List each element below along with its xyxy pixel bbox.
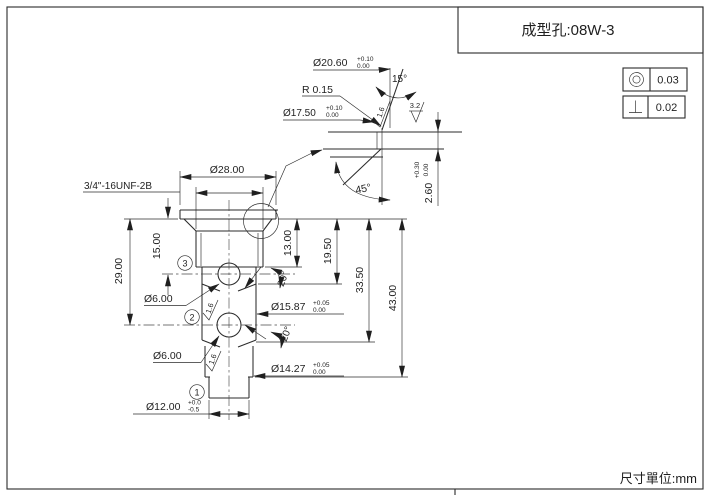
dim-len-15: 15.00 (151, 198, 168, 295)
balloon-2: 2 (185, 310, 200, 325)
balloon-1: 1 (190, 385, 205, 400)
depth-2-60-tol-upper: +0.30 (414, 161, 421, 178)
roughness-icon-upper-bore: 1.6 (203, 300, 218, 320)
angle-15-label: 15° (392, 74, 407, 85)
balloon-1-number: 1 (194, 388, 199, 398)
drawing-sheet: 成型孔:08W-3 0.03 0.02 (0, 0, 706, 495)
dim-len-43: 43.00 (387, 219, 402, 377)
depth-2-60-value: 2.60 (423, 183, 435, 204)
angle-20-upper-label: 20° (276, 270, 292, 288)
dia-14-27-tol-upper: +0.05 (313, 362, 330, 369)
len-29-label: 29.00 (113, 258, 125, 284)
detail-view-outline (323, 68, 462, 205)
roughness-lower-value: 1.6 (207, 353, 219, 366)
dim-len-13: 13.00 (282, 219, 297, 267)
concentricity-icon (630, 73, 644, 87)
roughness-taper-value: 1.6 (375, 106, 387, 119)
title-block: 成型孔:08W-3 (458, 7, 703, 53)
dia-20-60-tol-lower: 0.00 (357, 63, 370, 70)
dia-15-87-tol-upper: +0.05 (313, 300, 330, 307)
dia-28-label: Ø28.00 (210, 164, 245, 176)
roughness-upper-value: 1.6 (204, 302, 216, 315)
dia-14-27-value: Ø14.27 (271, 363, 306, 375)
dim-dia-12: Ø12.00 +0.0 -0.5 (133, 400, 249, 420)
tolerance-frame-concentricity: 0.03 (623, 68, 687, 91)
dim-len-19-5: 19.50 (322, 219, 337, 284)
angle-20-upper: 20° (271, 268, 291, 288)
dia-17-50-tol-upper: +0.10 (326, 105, 343, 112)
dia-15-87-value: Ø15.87 (271, 301, 306, 313)
balloon-3: 3 (178, 256, 193, 271)
tolerance-frame-perpendicularity: 0.02 (623, 96, 685, 118)
roughness-icon-lower-bore: 1.6 (206, 351, 221, 371)
dia-12-tol-upper: +0.0 (188, 400, 201, 407)
roughness-icon-seat: 3.2 (409, 101, 424, 122)
balloon-2-number: 2 (189, 313, 194, 323)
dim-len-29: 29.00 (113, 219, 178, 325)
dia-15-87-tol-lower: 0.00 (313, 307, 326, 314)
dia-20-60-value: Ø20.60 (313, 57, 348, 69)
thread-callout-label: 3/4"-16UNF-2B (84, 181, 152, 192)
dia-17-50-value: Ø17.50 (283, 108, 316, 119)
dim-thread-callout: 3/4"-16UNF-2B (83, 181, 263, 229)
engineering-drawing-canvas: 成型孔:08W-3 0.03 0.02 (0, 0, 706, 495)
dia-6-upper-label: Ø6.00 (144, 293, 173, 305)
label-dia-17-50: Ø17.50 +0.10 0.00 (283, 105, 374, 122)
len-43-label: 43.00 (387, 285, 399, 311)
dim-depth-2-60: +0.30 0.00 2.60 (414, 112, 438, 206)
len-33-5-label: 33.50 (354, 267, 366, 293)
radius-0-15-label: R 0.15 (302, 84, 333, 96)
dia-12-value: Ø12.00 (146, 401, 181, 413)
dim-len-33-5: 33.50 (354, 219, 369, 342)
len-15-label: 15.00 (151, 233, 163, 259)
len-19-5-label: 19.50 (322, 238, 334, 264)
dia-6-lower-label: Ø6.00 (153, 350, 182, 362)
roughness-seat-value: 3.2 (410, 101, 420, 110)
angle-20-lower-label: 20° (279, 325, 295, 343)
sheet-border (7, 7, 703, 495)
dim-dia-28: Ø28.00 (180, 164, 276, 205)
label-dia-20-60: Ø20.60 +0.10 0.00 (313, 56, 390, 70)
balloon-3-number: 3 (182, 259, 187, 269)
concentricity-value: 0.03 (657, 75, 678, 87)
perpendicularity-icon (629, 101, 642, 113)
dia-17-50-tol-lower: 0.00 (326, 112, 339, 119)
label-dia-15-87: Ø15.87 +0.05 0.00 (257, 300, 344, 314)
angle-15-callout: 15° (376, 74, 416, 98)
depth-2-60-tol-lower: 0.00 (423, 163, 430, 176)
detail-balloon (244, 150, 323, 239)
label-dia-14-27: Ø14.27 +0.05 0.00 (254, 362, 344, 376)
part-title: 成型孔:08W-3 (521, 22, 614, 39)
angle-20-lower: 20° (245, 325, 294, 348)
units-note: 尺寸單位:mm (620, 471, 697, 486)
len-13-label: 13.00 (282, 230, 294, 256)
angle-45-label: 45° (354, 182, 372, 197)
dia-14-27-tol-lower: 0.00 (313, 369, 326, 376)
perpendicularity-value: 0.02 (656, 102, 677, 114)
dia-12-tol-lower: -0.5 (188, 407, 200, 414)
dia-20-60-tol-upper: +0.10 (357, 56, 374, 63)
